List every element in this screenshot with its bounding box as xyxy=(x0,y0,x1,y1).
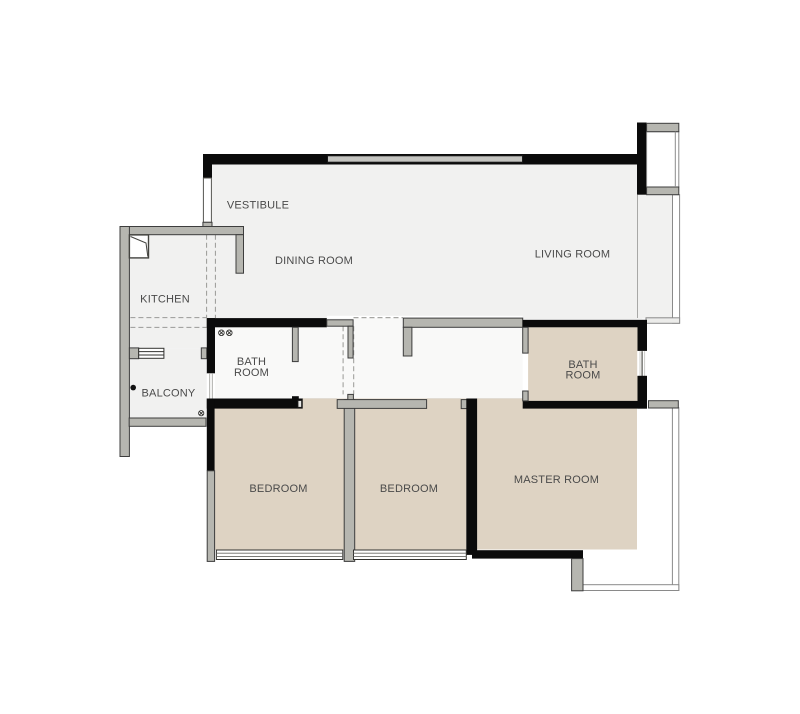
svg-text:MASTER ROOM: MASTER ROOM xyxy=(514,474,599,486)
svg-text:ROOM: ROOM xyxy=(565,370,600,382)
svg-text:KITCHEN: KITCHEN xyxy=(140,294,190,306)
svg-text:BEDROOM: BEDROOM xyxy=(380,483,438,495)
svg-text:DINING ROOM: DINING ROOM xyxy=(275,255,353,267)
svg-text:BEDROOM: BEDROOM xyxy=(249,483,307,495)
svg-text:ROOM: ROOM xyxy=(234,367,269,379)
svg-text:VESTIBULE: VESTIBULE xyxy=(227,200,289,212)
svg-text:BALCONY: BALCONY xyxy=(142,388,196,400)
svg-text:LIVING ROOM: LIVING ROOM xyxy=(535,249,611,261)
